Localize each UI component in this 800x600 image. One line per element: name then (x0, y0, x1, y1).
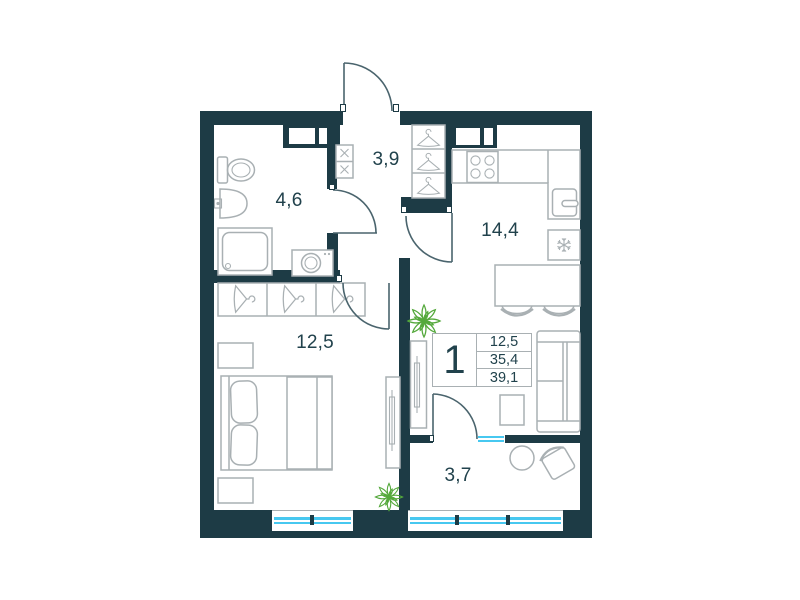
sofa (537, 331, 580, 432)
fridge-snowflake-icon (548, 230, 580, 260)
washing-machine (292, 250, 333, 276)
kitchen-door-swing (406, 213, 452, 262)
door-jamb (401, 206, 407, 213)
room-label-kitchen-living: 14,4 (481, 220, 519, 242)
meter-box-icon (336, 145, 353, 178)
plant-icon (375, 483, 402, 510)
bed (221, 376, 332, 470)
washbasin (215, 189, 248, 218)
plant-icon (408, 305, 440, 337)
door-jamb (429, 435, 434, 442)
entrance-door-swing (344, 63, 392, 111)
room-label-bedroom: 12,5 (296, 332, 334, 354)
door-jamb (329, 184, 335, 190)
fixtures-layer (0, 0, 800, 600)
door-jamb (340, 104, 346, 112)
dining-table (495, 265, 580, 306)
tv-console-living (411, 341, 427, 428)
balcony-table (510, 446, 534, 470)
door-jamb (336, 275, 342, 282)
balcony-door-swing (433, 394, 477, 439)
armchair (538, 443, 576, 481)
nightstand (218, 478, 253, 503)
nightstand (218, 343, 253, 368)
toilet (218, 157, 255, 183)
floor-plan: 1 12,5 35,4 39,1 (0, 0, 800, 600)
tv-console-bedroom (386, 377, 400, 468)
shower (218, 228, 272, 275)
room-label-bathroom: 4,6 (275, 190, 302, 212)
door-jamb (446, 206, 452, 213)
room-label-hallway: 3,9 (372, 149, 399, 171)
side-table (500, 395, 524, 425)
bathroom-door-swing (333, 190, 377, 233)
room-label-balcony: 3,7 (444, 465, 471, 487)
hall-closet (412, 125, 445, 198)
door-jamb (393, 104, 399, 112)
